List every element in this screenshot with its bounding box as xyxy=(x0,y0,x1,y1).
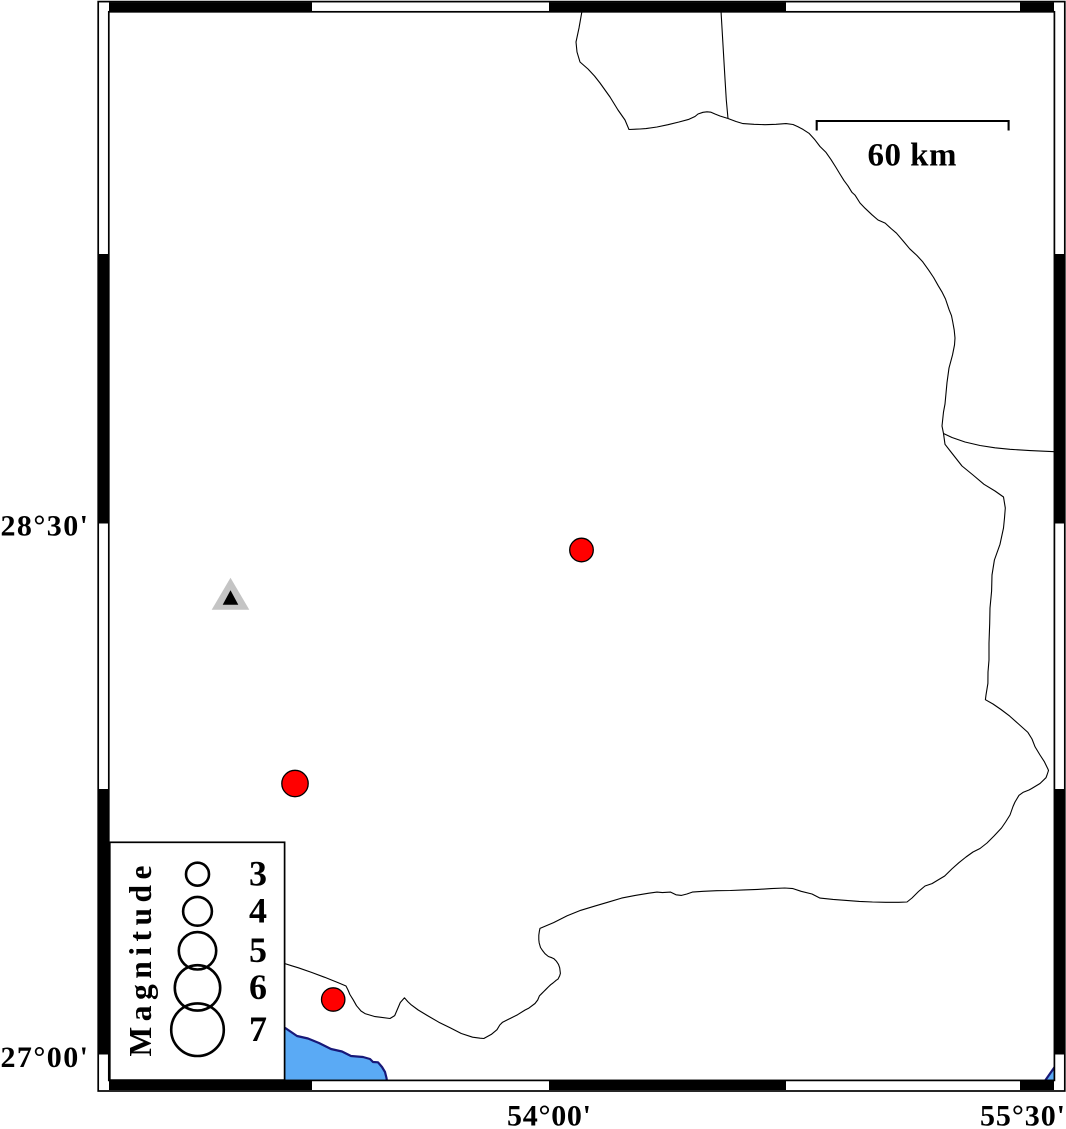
svg-text:3: 3 xyxy=(249,854,267,894)
svg-text:54°00': 54°00' xyxy=(507,1099,591,1129)
svg-text:60 km: 60 km xyxy=(868,137,957,173)
svg-text:6: 6 xyxy=(249,967,267,1007)
svg-text:28°30': 28°30' xyxy=(1,510,89,543)
svg-text:4: 4 xyxy=(249,891,267,931)
svg-text:55°30': 55°30' xyxy=(980,1099,1065,1129)
svg-text:7: 7 xyxy=(249,1009,267,1049)
svg-text:5: 5 xyxy=(249,930,267,970)
svg-text:Magnitude: Magnitude xyxy=(123,860,158,1057)
svg-text:27°00': 27°00' xyxy=(1,1041,89,1074)
